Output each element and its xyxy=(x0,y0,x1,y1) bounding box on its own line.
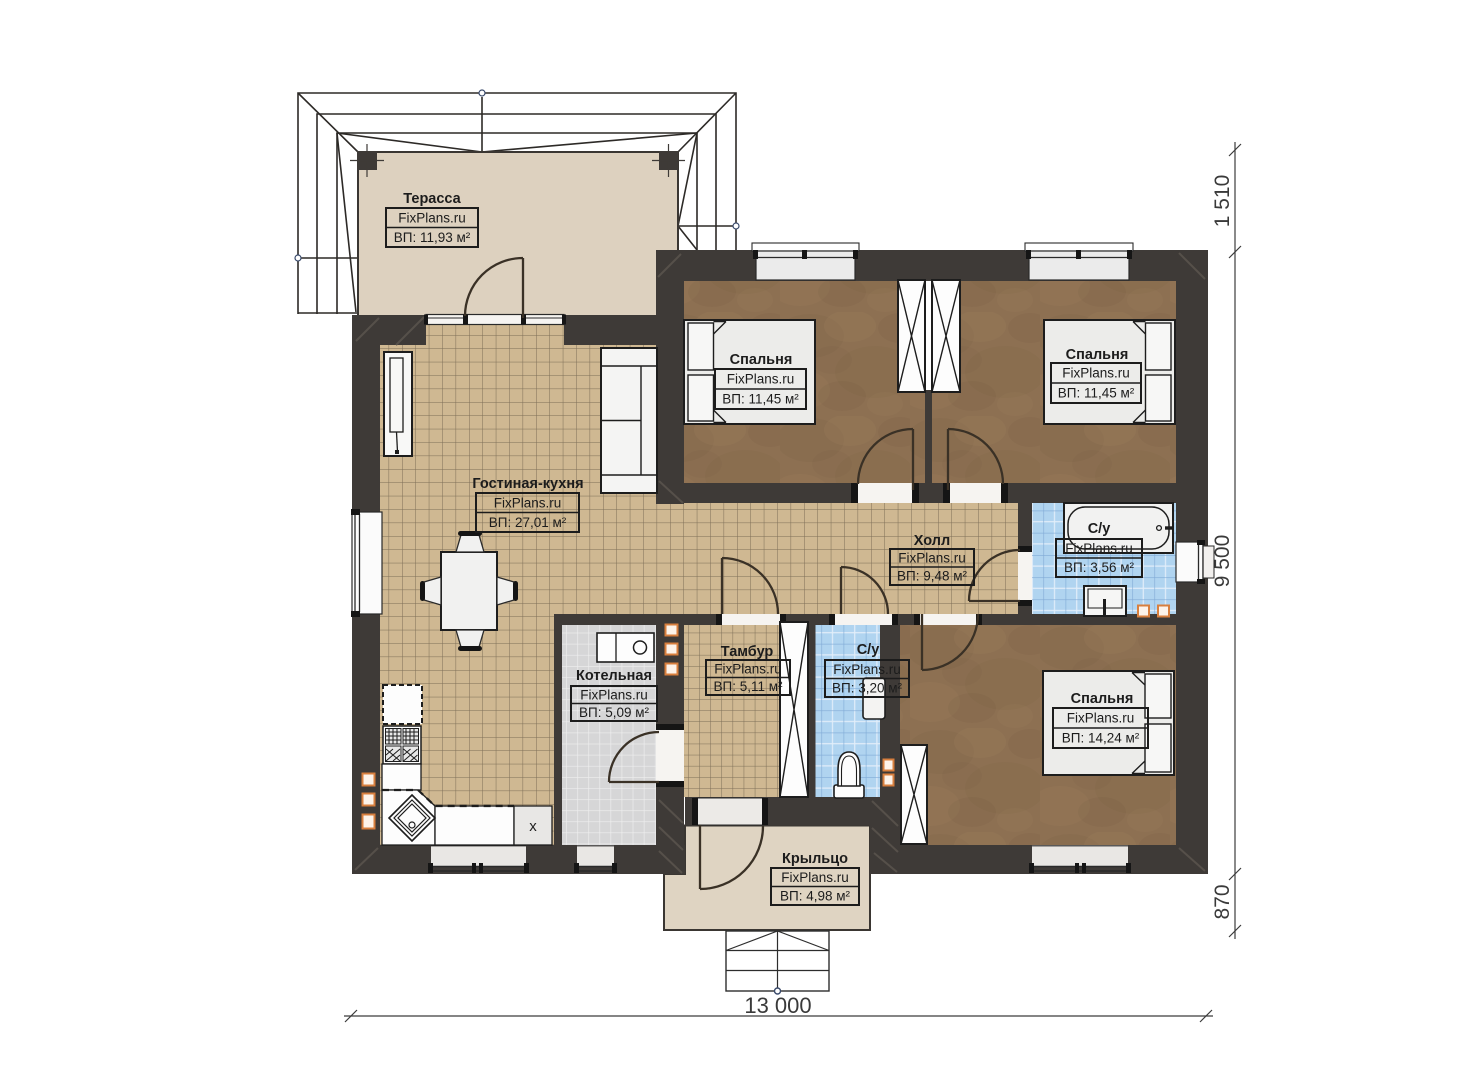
svg-text:Терасса: Терасса xyxy=(403,191,461,207)
svg-text:ВП: 4,98 м²: ВП: 4,98 м² xyxy=(780,888,851,903)
svg-text:FixPlans.ru: FixPlans.ru xyxy=(1065,541,1133,556)
svg-text:Тамбур: Тамбур xyxy=(721,644,774,660)
svg-text:x: x xyxy=(529,818,537,835)
svg-text:FixPlans.ru: FixPlans.ru xyxy=(727,372,795,387)
svg-text:ВП: 3,20 м²: ВП: 3,20 м² xyxy=(832,680,903,695)
svg-text:С/у: С/у xyxy=(857,642,880,658)
svg-text:13 000: 13 000 xyxy=(744,993,811,1018)
svg-text:ВП: 9,48 м²: ВП: 9,48 м² xyxy=(897,569,968,584)
svg-text:FixPlans.ru: FixPlans.ru xyxy=(398,210,466,225)
svg-text:870: 870 xyxy=(1211,884,1234,919)
svg-text:Холл: Холл xyxy=(914,533,950,549)
svg-text:ВП: 11,45 м²: ВП: 11,45 м² xyxy=(1058,386,1135,401)
svg-text:FixPlans.ru: FixPlans.ru xyxy=(1062,366,1130,381)
svg-text:FixPlans.ru: FixPlans.ru xyxy=(1067,711,1135,726)
svg-text:ВП: 3,56 м²: ВП: 3,56 м² xyxy=(1064,560,1135,575)
svg-text:9 500: 9 500 xyxy=(1211,535,1234,588)
svg-text:Гостиная-кухня: Гостиная-кухня xyxy=(472,476,583,492)
svg-text:ВП: 27,01 м²: ВП: 27,01 м² xyxy=(489,515,567,530)
svg-text:Крыльцо: Крыльцо xyxy=(782,851,848,867)
svg-text:FixPlans.ru: FixPlans.ru xyxy=(833,662,901,677)
svg-text:FixPlans.ru: FixPlans.ru xyxy=(781,870,849,885)
svg-text:С/у: С/у xyxy=(1088,521,1111,537)
svg-text:FixPlans.ru: FixPlans.ru xyxy=(494,495,562,510)
svg-text:FixPlans.ru: FixPlans.ru xyxy=(580,687,648,702)
svg-text:FixPlans.ru: FixPlans.ru xyxy=(714,661,782,676)
svg-text:ВП: 11,45 м²: ВП: 11,45 м² xyxy=(722,392,799,407)
svg-text:Спальня: Спальня xyxy=(730,352,793,368)
svg-text:ВП: 5,11 м²: ВП: 5,11 м² xyxy=(713,679,783,694)
svg-text:ВП: 5,09 м²: ВП: 5,09 м² xyxy=(579,705,650,720)
svg-text:Котельная: Котельная xyxy=(576,668,652,684)
svg-text:1 510: 1 510 xyxy=(1211,175,1234,228)
svg-text:ВП: 14,24 м²: ВП: 14,24 м² xyxy=(1062,731,1140,746)
svg-text:ВП: 11,93 м²: ВП: 11,93 м² xyxy=(394,230,471,245)
svg-text:Спальня: Спальня xyxy=(1066,347,1129,363)
svg-text:Спальня: Спальня xyxy=(1071,691,1134,707)
svg-text:FixPlans.ru: FixPlans.ru xyxy=(898,551,966,566)
